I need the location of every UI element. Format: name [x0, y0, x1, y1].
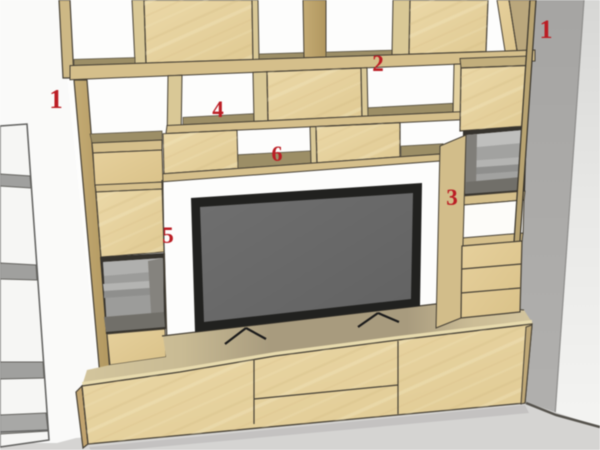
svg-text:1: 1	[49, 84, 63, 114]
svg-text:5: 5	[162, 223, 174, 248]
svg-text:1: 1	[540, 15, 553, 44]
svg-text:4: 4	[212, 97, 224, 122]
svg-text:3: 3	[446, 185, 458, 210]
svg-text:6: 6	[272, 141, 283, 166]
svg-text:2: 2	[372, 51, 384, 76]
